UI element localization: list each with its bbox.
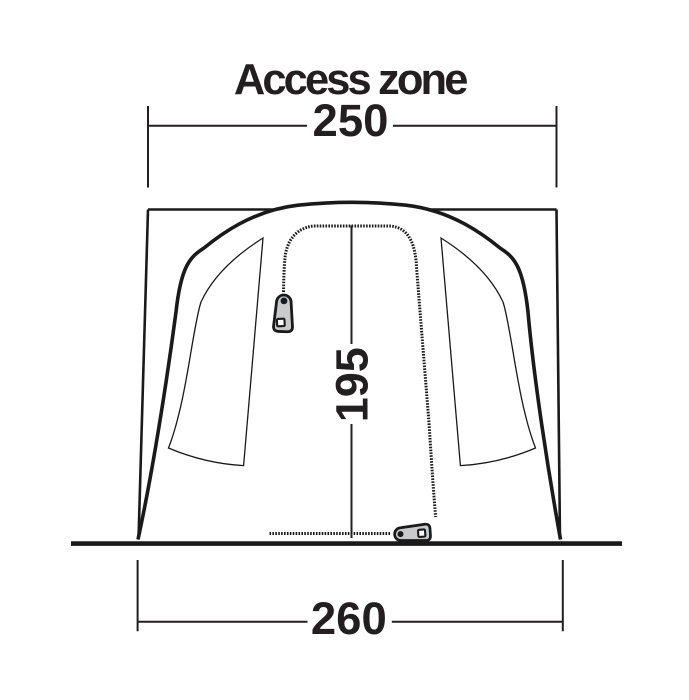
svg-text:250: 250 [313, 95, 389, 146]
svg-text:260: 260 [311, 593, 387, 644]
svg-text:195: 195 [327, 347, 378, 422]
